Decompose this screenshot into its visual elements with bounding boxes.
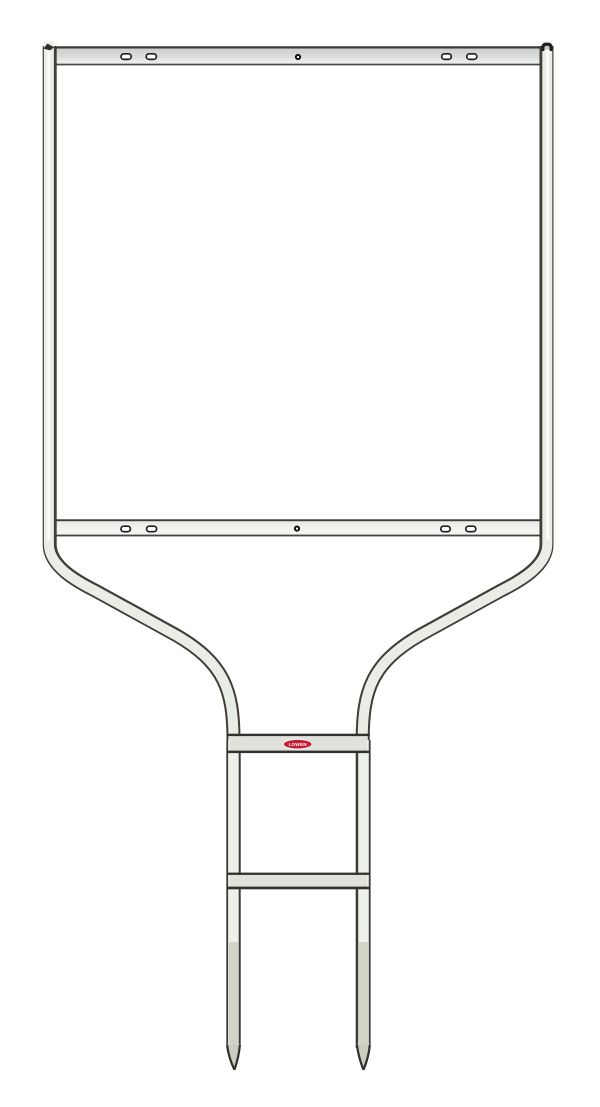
svg-text:LOWEN: LOWEN bbox=[289, 742, 308, 747]
